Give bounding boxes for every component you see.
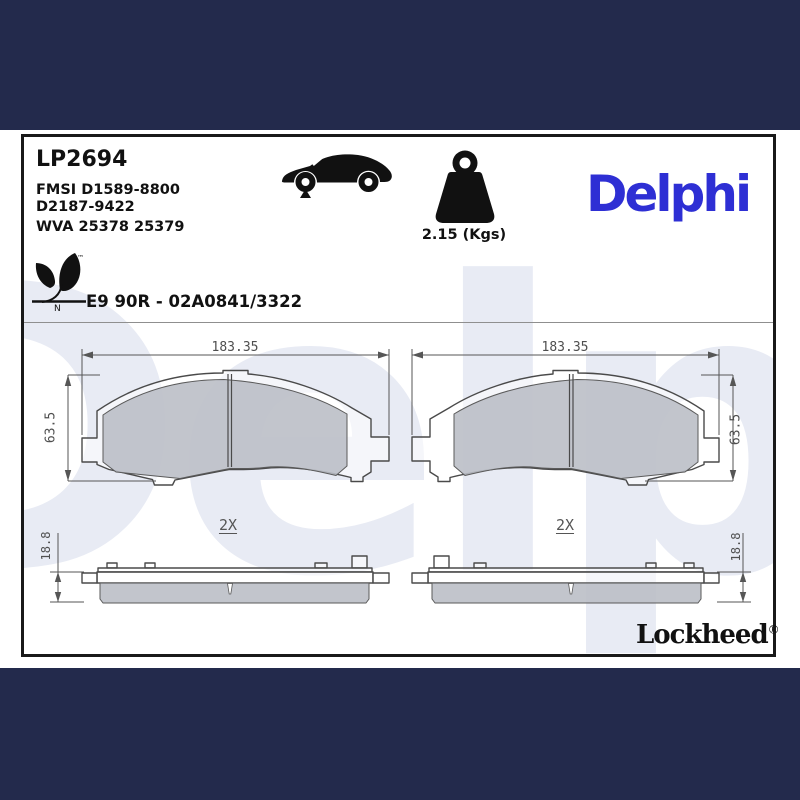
side-view-left-pad [50,533,389,603]
part-number: LP2694 [36,147,127,172]
thickness-dimension-right: 18.8 [729,526,743,568]
quantity-label-right: 2X [542,516,588,534]
side-view-right-pad [412,533,751,603]
ece-approval-number: E9 90R - 02A0841/3322 [86,292,302,311]
fmsi-reference-line2: D2187-9422 [36,199,135,215]
width-dimension-right: 183.35 [533,340,597,355]
delphi-logo: Delphi [586,167,749,222]
thickness-dimension-left: 18.8 [39,525,53,567]
front-view-right-pad [412,349,736,485]
quantity-label-left: 2X [205,516,251,534]
bottom-letterbox-bar [0,668,800,800]
lockheed-logo: Lockheed® [636,620,779,650]
header-divider [24,322,773,323]
eco-leaf-icon: N ™ [30,250,88,312]
brake-pad-technical-drawing [24,323,774,653]
top-letterbox-bar [0,0,800,130]
car-silhouette-icon [280,146,394,200]
trademark-symbol: ™ [77,254,84,262]
wva-reference: WVA 25378 25379 [36,219,184,235]
height-dimension-left: 63.5 [44,405,59,451]
height-dimension-right: 63.5 [729,407,744,453]
lockheed-wordmark: Lockheed [636,620,768,650]
weight-icon [424,150,506,226]
weight-value: 2.15 (Kgs) [408,227,520,243]
registered-symbol: ® [768,622,779,636]
front-view-left-pad [65,349,389,485]
eco-n-label: N [54,304,61,312]
width-dimension-left: 183.35 [203,340,267,355]
fmsi-reference-line1: FMSI D1589-8800 [36,182,180,198]
